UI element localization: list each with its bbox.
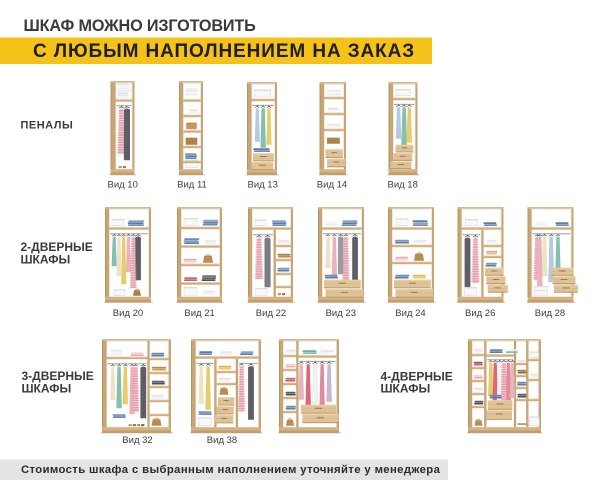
svg-text:Вид 18: Вид 18 [387,179,417,190]
svg-text:ШКАФЫ: ШКАФЫ [22,382,72,396]
svg-text:Стоимость шкафа с выбранным на: Стоимость шкафа с выбранным наполнением … [21,464,441,476]
svg-text:ШКАФЫ: ШКАФЫ [21,253,71,267]
svg-text:Вид 11: Вид 11 [177,179,207,190]
svg-text:Вид 20: Вид 20 [113,308,143,319]
svg-text:С ЛЮБЫМ НАПОЛНЕНИЕМ НА ЗАКАЗ: С ЛЮБЫМ НАПОЛНЕНИЕМ НА ЗАКАЗ [33,41,415,62]
svg-text:ПЕНАЛЫ: ПЕНАЛЫ [21,119,74,131]
svg-text:Вид 38: Вид 38 [207,435,237,446]
svg-text:Вид 22: Вид 22 [256,308,286,319]
svg-text:Вид 26: Вид 26 [465,308,495,319]
svg-text:Вид 23: Вид 23 [326,308,356,319]
svg-text:ШКАФ МОЖНО ИЗГОТОВИТЬ: ШКАФ МОЖНО ИЗГОТОВИТЬ [24,17,257,35]
svg-text:Вид 14: Вид 14 [317,179,347,190]
svg-text:Вид 32: Вид 32 [122,435,152,446]
svg-text:Вид 13: Вид 13 [247,179,277,190]
svg-text:Вид 21: Вид 21 [184,308,214,319]
svg-text:Вид 10: Вид 10 [107,179,137,190]
svg-text:ШКАФЫ: ШКАФЫ [381,382,431,396]
svg-text:Вид 24: Вид 24 [395,308,425,319]
svg-text:Вид 28: Вид 28 [535,308,565,319]
